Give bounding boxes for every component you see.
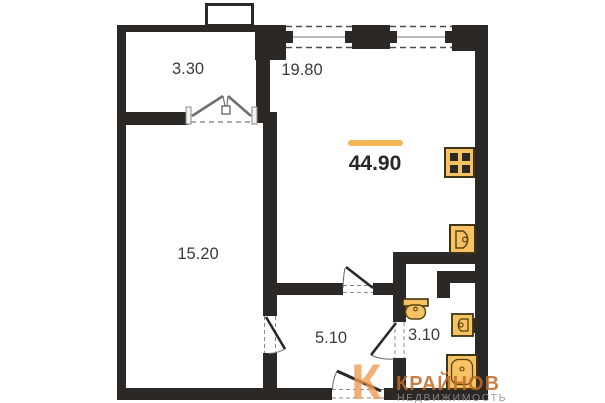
brand-logo-letter-icon: К: [351, 354, 382, 403]
total-area-label: 44.90: [349, 152, 402, 175]
wall-duct-vertical: [437, 271, 450, 298]
wall-balcony-bottom: [126, 112, 188, 125]
kitchen-sink-icon: [450, 225, 475, 253]
balcony-projection-outline: [207, 5, 253, 26]
door-leaf: [371, 323, 396, 355]
window-handle: [222, 106, 230, 114]
total-area-underline: [348, 140, 403, 146]
bedroom-door: [265, 316, 286, 354]
wall-bathroom-left-upper: [393, 252, 406, 322]
wall-outer-right: [475, 25, 488, 400]
floor-plan-canvas: 44.90 3.30 19.80 15.20 5.10 3.10 К КРАЙН…: [0, 0, 605, 403]
wall-balcony-right: [256, 25, 270, 123]
room-label-hallway: 5.10: [315, 329, 347, 347]
toilet-icon: [403, 299, 428, 319]
door-swing-arc: [268, 349, 285, 354]
room-label-bathroom: 3.10: [408, 326, 440, 344]
door-swing-arc: [333, 371, 338, 390]
room-label-bedroom: 15.20: [177, 245, 218, 263]
balcony-window: [186, 96, 257, 124]
washbasin-icon: [452, 314, 477, 336]
door-leaf: [346, 267, 373, 288]
room-label-balcony: 3.30: [172, 60, 204, 78]
stove-icon: [445, 148, 474, 177]
watermark-tagline: НЕДВИЖИМОСТЬ: [397, 392, 507, 403]
wall-hallway-top-left: [263, 283, 343, 295]
wall-bottom-left: [117, 388, 332, 400]
wall-balcony-top: [117, 25, 258, 32]
floor-plan: 44.90 3.30 19.80 15.20 5.10 3.10 К КРАЙН…: [0, 0, 605, 403]
living-room-door: [343, 267, 373, 293]
room-label-living-kitchen: 19.80: [281, 61, 322, 79]
wall-window-pier: [352, 25, 390, 49]
wall-outer-left: [117, 25, 126, 400]
